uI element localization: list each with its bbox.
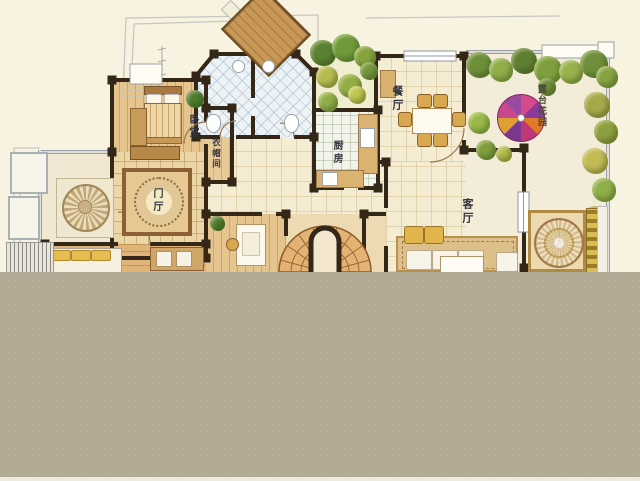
trellis	[6, 242, 54, 274]
tree	[496, 146, 512, 162]
tree	[318, 92, 338, 112]
study-chair	[226, 238, 239, 251]
balcony-box	[8, 196, 40, 240]
kitchen-sink	[360, 128, 375, 148]
umbrella-pole	[517, 114, 525, 122]
wardrobe-door	[156, 251, 172, 267]
toilet	[284, 114, 299, 133]
sink	[262, 60, 275, 73]
sofa-cushion	[496, 252, 518, 272]
dining-table	[412, 108, 452, 134]
wardrobe-door	[176, 251, 192, 267]
bed-pillow-gold	[51, 250, 71, 261]
tree	[466, 52, 492, 78]
floorplan-canvas: 餐厅 厨房 客厅 卧室 衣帽间 门厅 露台花园	[0, 0, 640, 481]
bed-footboard	[144, 137, 182, 144]
armchair	[404, 226, 424, 244]
armchair	[424, 226, 444, 244]
dining-chair	[417, 94, 432, 108]
study-plant	[210, 216, 225, 231]
stove	[322, 172, 338, 186]
bed-pillow-gold	[91, 250, 111, 261]
tree	[468, 112, 490, 134]
terrace-wall-bar	[597, 206, 608, 274]
bedroom-bench	[130, 146, 180, 160]
foyer-label: 门厅	[151, 188, 161, 214]
kitchen-label: 厨房	[331, 140, 341, 166]
tree	[594, 120, 618, 144]
bedroom-label: 卧室	[187, 114, 197, 140]
tree	[360, 62, 378, 80]
study-desk-inner	[242, 232, 260, 256]
terrace-medallion	[534, 218, 584, 268]
living-room-label: 客厅	[462, 198, 473, 226]
dining-chair	[433, 133, 448, 147]
toilet	[206, 114, 221, 133]
sink	[232, 60, 245, 73]
dining-chair	[433, 94, 448, 108]
dresser	[130, 108, 147, 146]
left-terrace-medallion-center	[78, 200, 92, 214]
gray-cover-overlay	[0, 272, 640, 477]
tree	[348, 86, 366, 104]
sofa-cushion	[406, 250, 432, 270]
tree	[489, 58, 513, 82]
tree	[316, 66, 338, 88]
bed-duvet	[144, 103, 182, 139]
balcony-box	[10, 152, 48, 194]
bed-pillow-gold	[71, 250, 91, 261]
bedroom-plant	[186, 90, 204, 108]
terrace-garden-label: 露台花园	[536, 84, 545, 128]
tree	[582, 148, 608, 174]
tree	[592, 178, 616, 202]
cloakroom-label: 衣帽间	[211, 138, 220, 170]
grand-staircase	[279, 226, 371, 272]
tree	[596, 66, 618, 88]
tree	[476, 140, 496, 160]
dining-chair	[417, 133, 432, 147]
dining-chair	[398, 112, 412, 127]
dining-chair	[452, 112, 466, 127]
bottom-strip	[0, 477, 640, 481]
tree	[584, 92, 610, 118]
dining-room-label: 餐厅	[392, 85, 403, 113]
